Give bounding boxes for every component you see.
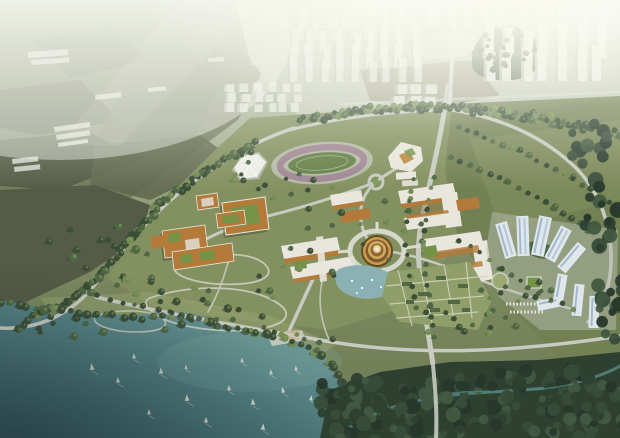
aerial-rendering <box>0 0 620 438</box>
warm-cast <box>0 0 620 438</box>
lighting-overlays <box>0 0 620 438</box>
rendering-stage <box>0 0 620 438</box>
